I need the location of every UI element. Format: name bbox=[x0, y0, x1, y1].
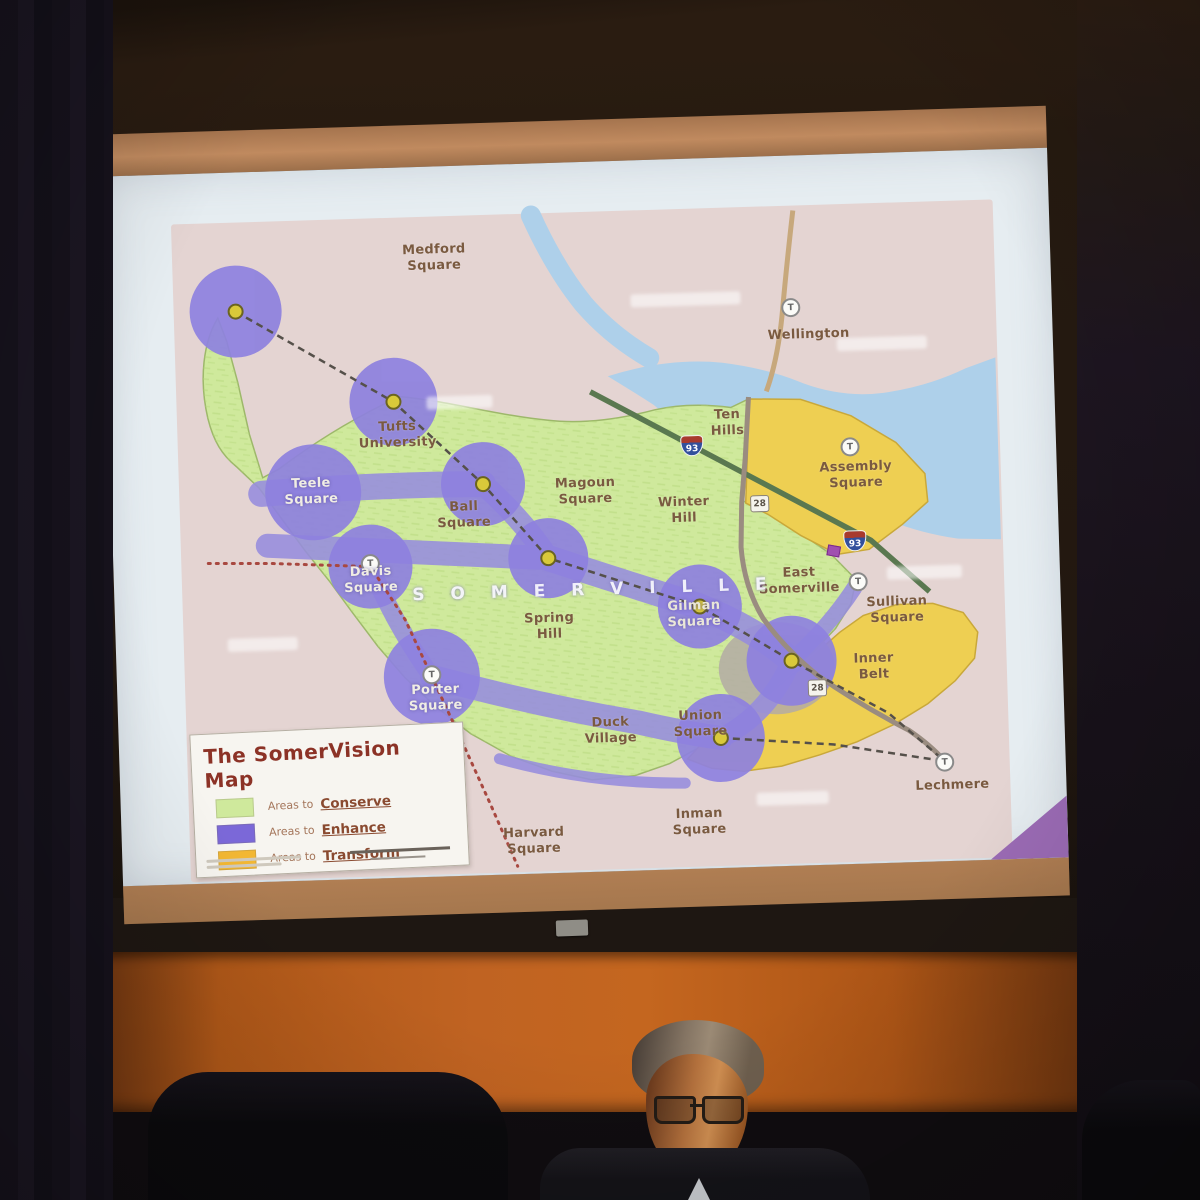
ghost-label bbox=[757, 791, 829, 806]
curtain-left bbox=[0, 0, 113, 1200]
curtain-right bbox=[1077, 0, 1200, 1200]
assembly-orange-station bbox=[826, 544, 841, 557]
legend-box: The SomerVision Map Areas to Conserve Ar… bbox=[189, 721, 470, 878]
map-label-tufts-university: Tufts University bbox=[358, 418, 437, 453]
legend-prefix: Areas to bbox=[268, 798, 314, 813]
map-label-duck-village: Duck Village bbox=[584, 714, 637, 748]
map-label-assembly-square: Assembly Square bbox=[819, 458, 893, 493]
map-label-inman-square: Inman Square bbox=[672, 806, 727, 840]
map-label-ball-square: Ball Square bbox=[437, 499, 492, 533]
legend-term-transform: Transform bbox=[322, 844, 400, 864]
map-label-davis-square: Davis Square bbox=[344, 564, 399, 598]
enhance-swatch bbox=[217, 824, 256, 845]
map-label-union-square: Union Square bbox=[673, 708, 728, 742]
map-label-medford-square: Medford Square bbox=[402, 241, 466, 275]
glasses-lens bbox=[702, 1096, 744, 1124]
presenter-glasses bbox=[652, 1096, 744, 1122]
map-label-porter-square: Porter Square bbox=[408, 682, 463, 716]
map-label-gilman-square: Gilman Square bbox=[667, 598, 722, 632]
map-label-lechmere: Lechmere bbox=[915, 777, 990, 796]
screen-surface: T T T T T T 93 93 28 28 Medford Square W… bbox=[101, 148, 1068, 887]
glasses-bridge bbox=[690, 1104, 704, 1107]
seated-presenter bbox=[540, 1010, 870, 1200]
chair-back-right bbox=[1082, 1080, 1200, 1200]
wall-plate bbox=[556, 919, 589, 936]
legend-term-enhance: Enhance bbox=[321, 819, 386, 838]
route-28-shield: 28 bbox=[750, 495, 770, 513]
glasses-lens bbox=[654, 1096, 696, 1124]
map-label-harvard-square: Harvard Square bbox=[503, 825, 565, 859]
legend-title: The SomerVision Map bbox=[203, 733, 455, 793]
ghost-label bbox=[887, 565, 962, 580]
map-label-teele-square: Teele Square bbox=[284, 475, 339, 509]
map-label-ten-hills: Ten Hills bbox=[710, 407, 744, 441]
map-label-spring-hill: Spring Hill bbox=[524, 610, 575, 644]
conserve-swatch bbox=[215, 798, 254, 819]
ghost-label bbox=[228, 637, 298, 652]
map-label-sullivan-square: Sullivan Square bbox=[866, 593, 928, 627]
legend-term-conserve: Conserve bbox=[320, 793, 391, 812]
map-label-magoun-square: Magoun Square bbox=[555, 475, 616, 509]
map-label-wellington: Wellington bbox=[767, 326, 849, 345]
route-28-shield: 28 bbox=[808, 679, 828, 697]
chair-back-left bbox=[148, 1072, 508, 1200]
ghost-label bbox=[426, 395, 492, 410]
auditorium-photo: T T T T T T 93 93 28 28 Medford Square W… bbox=[0, 0, 1200, 1200]
legend-prefix: Areas to bbox=[269, 824, 315, 839]
legend-row-conserve: Areas to Conserve bbox=[215, 787, 466, 818]
projection-screen: T T T T T T 93 93 28 28 Medford Square W… bbox=[100, 106, 1070, 925]
somervision-slide: T T T T T T 93 93 28 28 Medford Square W… bbox=[101, 148, 1068, 887]
map-label-winter-hill: Winter Hill bbox=[658, 494, 710, 528]
ghost-label bbox=[837, 335, 927, 351]
map-label-inner-belt: Inner Belt bbox=[853, 650, 894, 684]
legend-row-enhance: Areas to Enhance bbox=[217, 813, 468, 844]
